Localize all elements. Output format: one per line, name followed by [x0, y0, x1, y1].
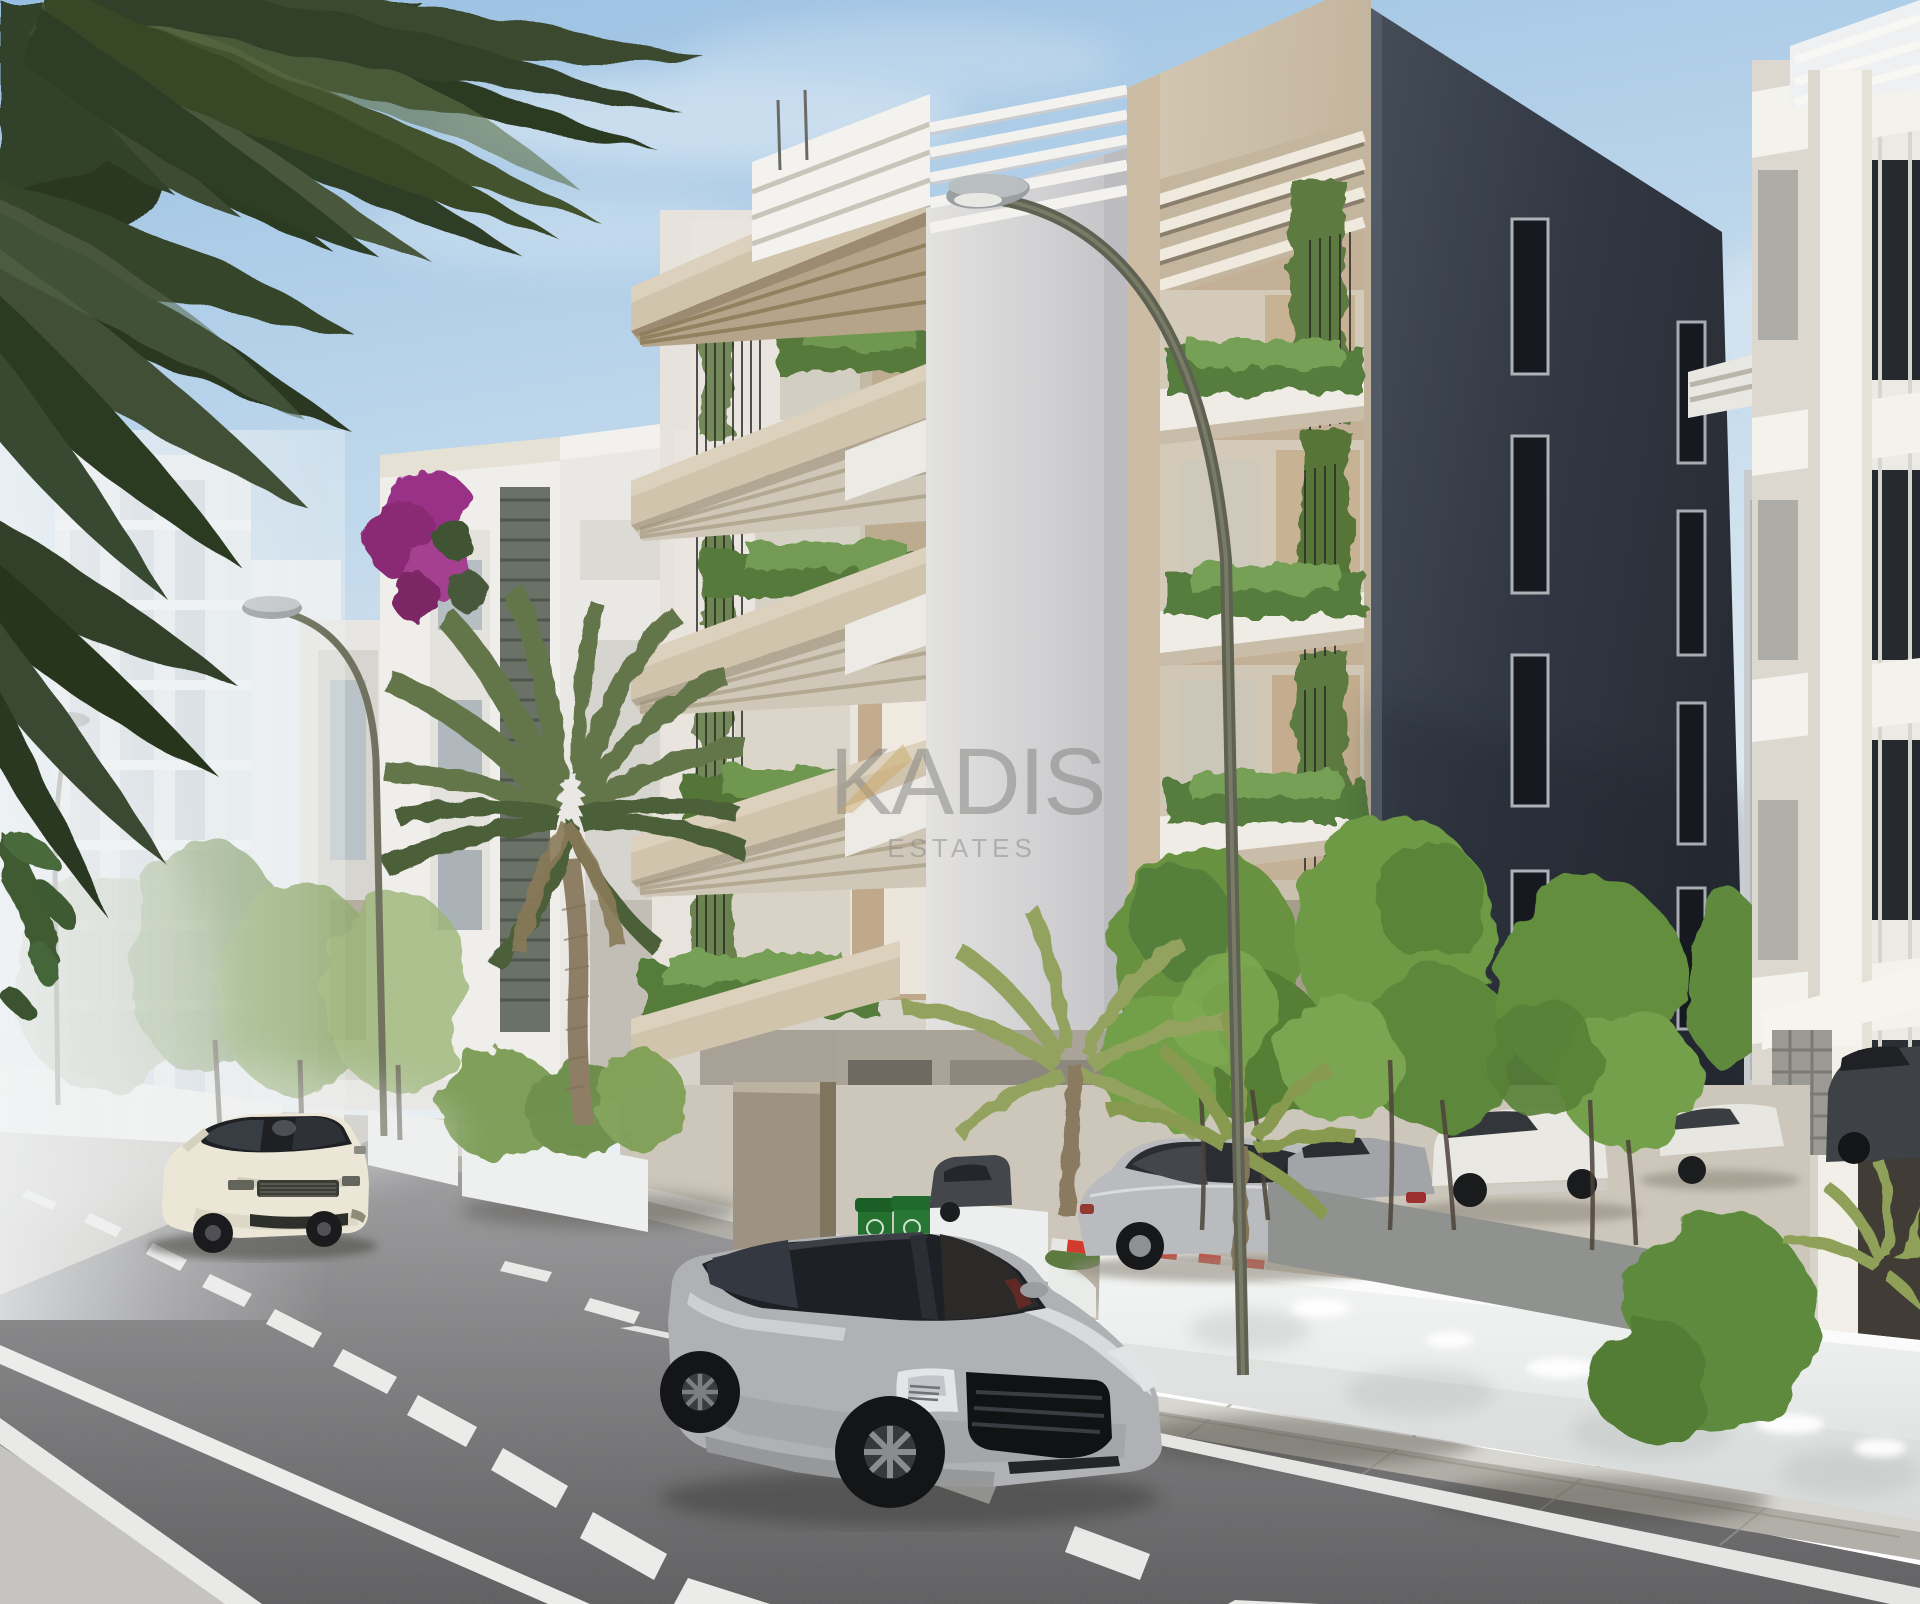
svg-text:ESTATES: ESTATES: [887, 833, 1037, 863]
